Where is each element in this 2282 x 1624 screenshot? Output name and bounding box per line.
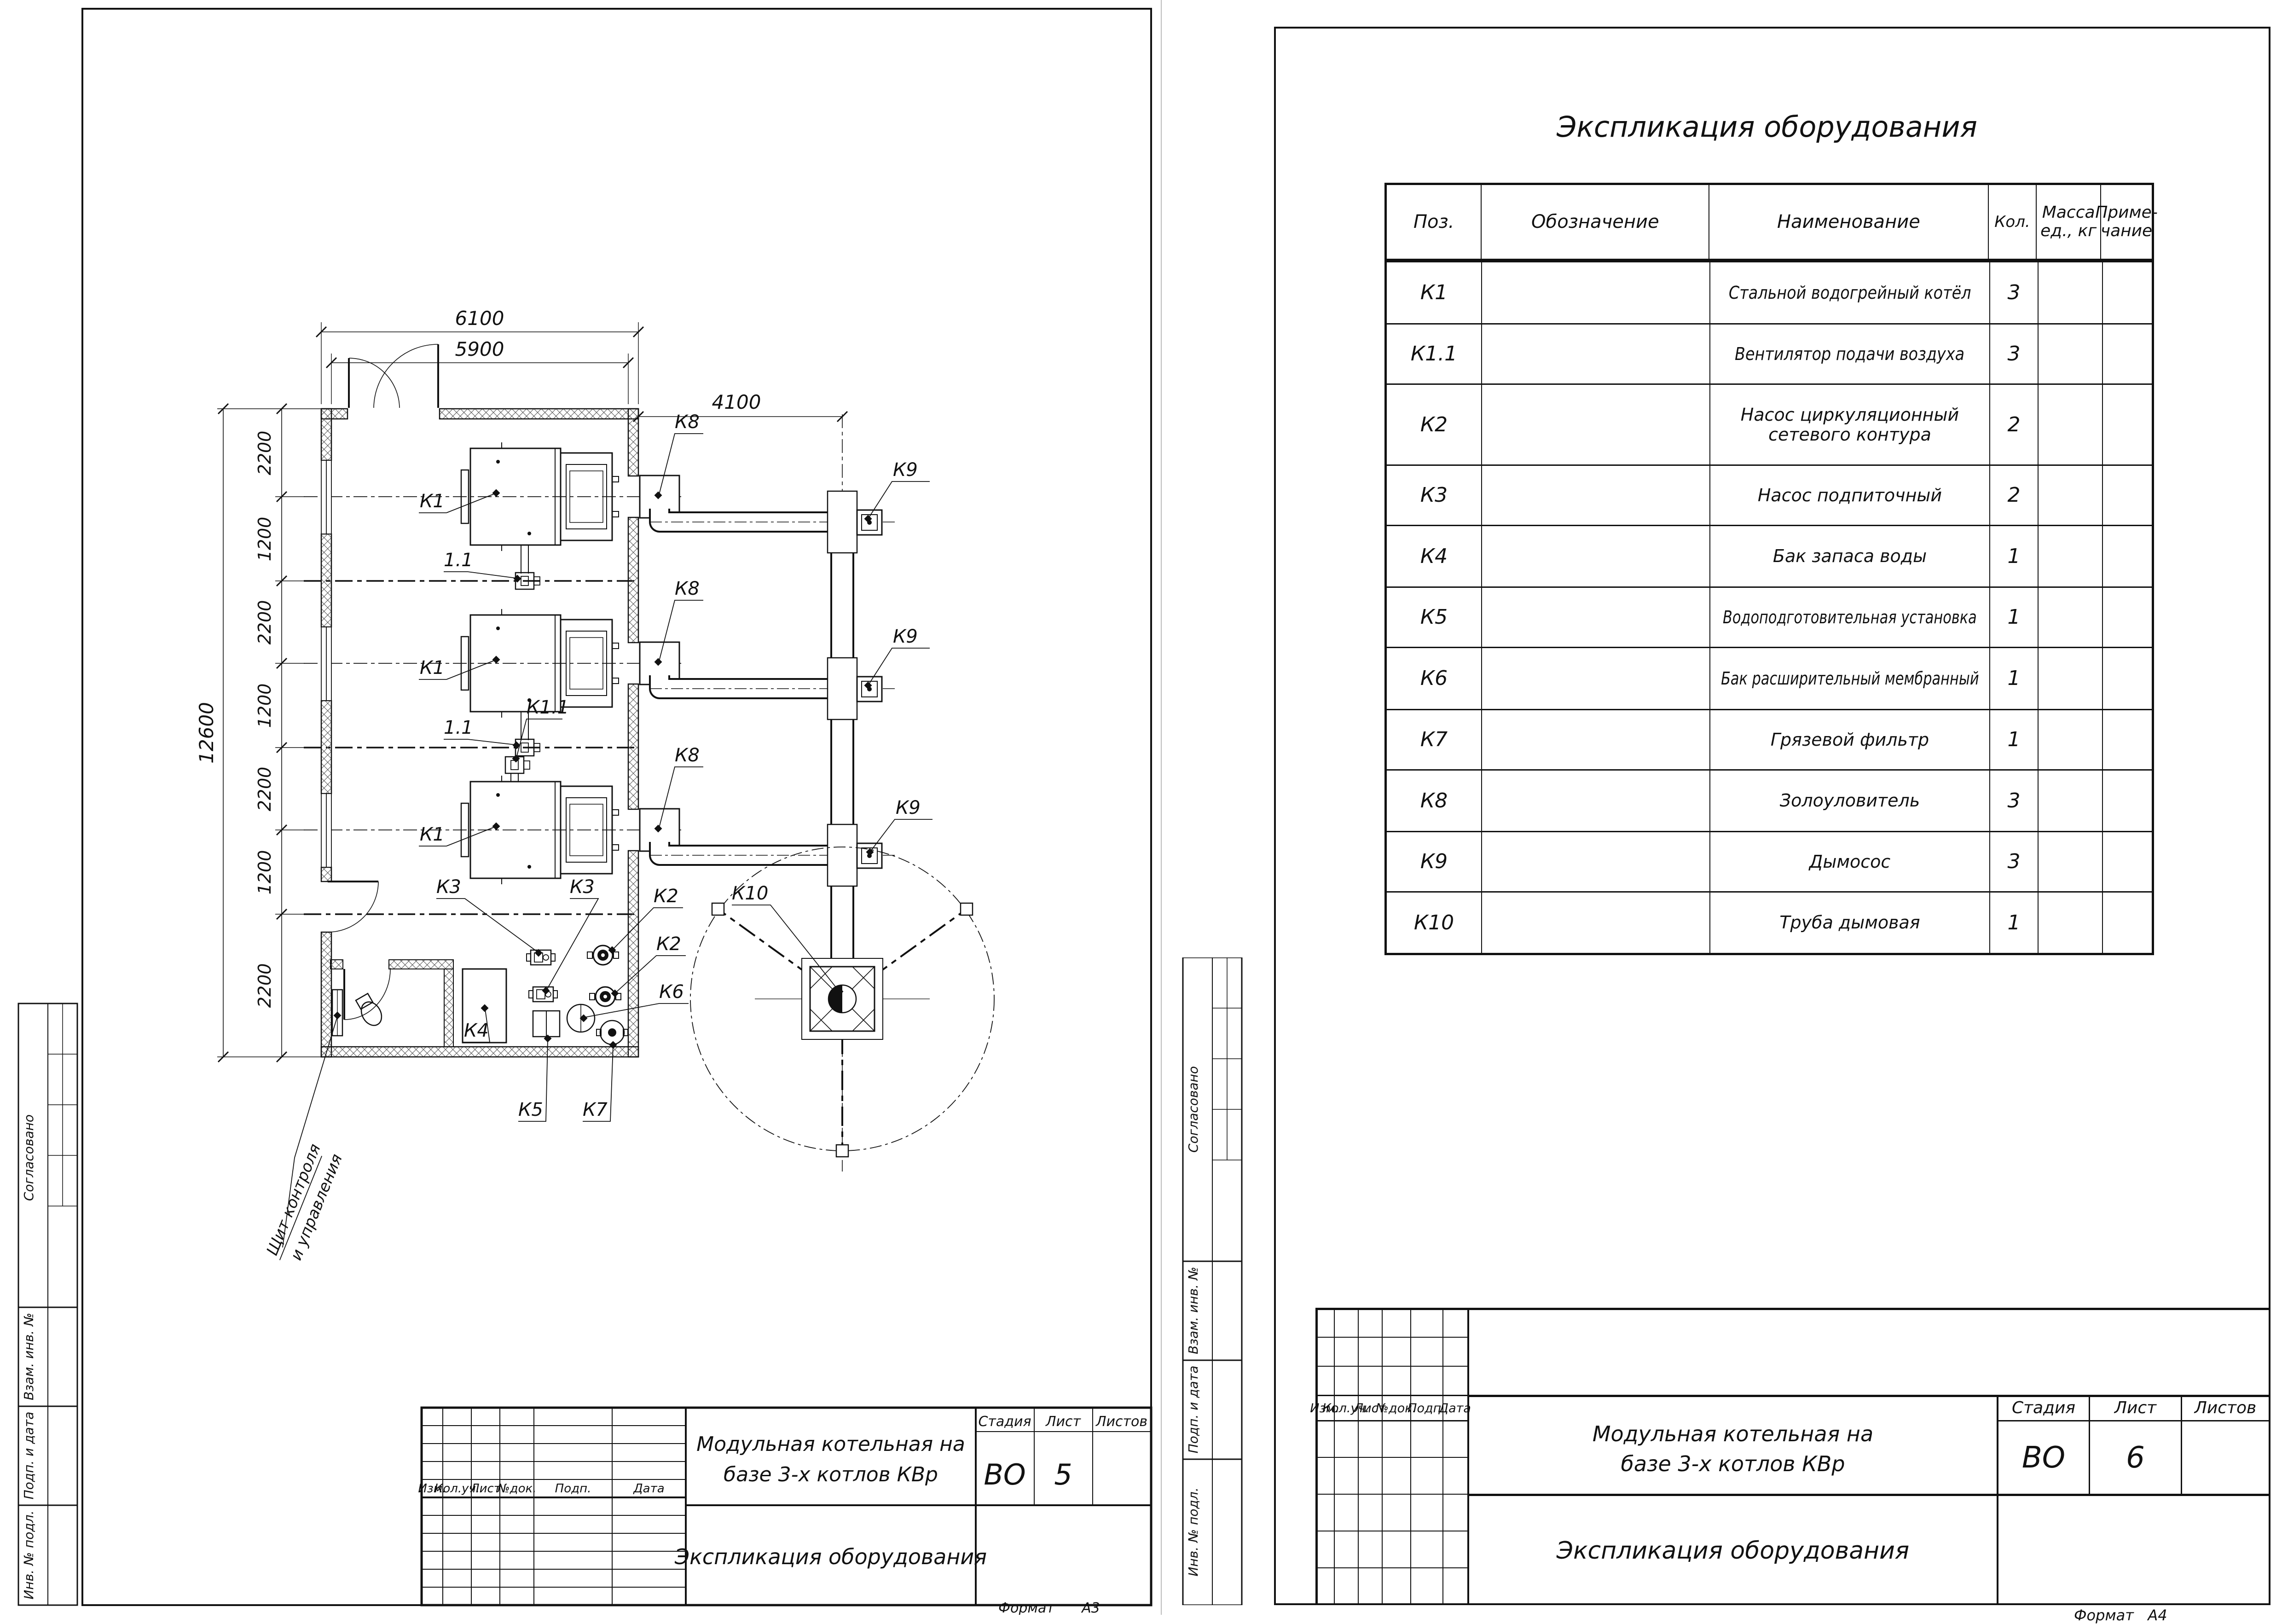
right-margin-stamps: Согласовано Взам. инв. № Подп. и дата Ин… [1176,957,1273,1605]
label-k1-3: К1 [420,824,445,845]
stamp-inv-podl: Инв. № подл. [1186,1487,1201,1576]
fan-2 [515,712,540,756]
stage-label: Стадия [978,1414,1031,1430]
page-title: Экспликация оборудования [1384,106,2149,147]
format-note: Формат А4 [2074,1607,2167,1624]
boiler-axes [304,497,681,830]
pump-k2-2 [590,987,621,1006]
svg-text:2200: 2200 [255,600,275,645]
mud-filter-k7 [597,1021,628,1044]
flue-row-1 [640,476,897,553]
svg-text:6100: 6100 [455,307,504,330]
project-title-line1: Модульная котельная на [696,1433,965,1456]
svg-text:4100: 4100 [712,391,761,413]
sheet-label: Лист [1045,1414,1082,1430]
table-row: К1 Стальной водогрейный котёл 3 [1387,261,2152,323]
fan-1 [515,545,540,589]
stamp-podp-data: Подп. и дата [1186,1366,1201,1454]
table-row: К7 Грязевой фильтр 1 [1387,709,2152,769]
col-header-name: Наименование [1709,185,1988,259]
rev-list: Лист [470,1482,501,1496]
sheet-label: Лист [2090,1396,2181,1419]
label-k1-2: К1 [420,657,445,679]
stage-value: ВО [984,1458,1025,1491]
rev-podp: Подп. [1410,1397,1442,1419]
label-k3-2: К3 [570,876,595,898]
col-header-note: Приме-чание [2101,185,2152,259]
document-scan: { "doc": { "project_line1": "Модульная к… [0,0,2282,1615]
rev-data: Дата [633,1482,664,1496]
windows [321,460,331,867]
svg-text:2200: 2200 [255,431,275,476]
stage-value: ВО [1998,1422,2089,1493]
stamp-vzam-inv: Взам. инв. № [21,1313,36,1400]
svg-text:5900: 5900 [455,338,504,360]
format-label: Формат [2074,1607,2134,1624]
equipment-table: Поз. Обозначение Наименование Кол. Масса… [1384,183,2154,955]
flue-row-2 [640,642,897,719]
left-title-block: Изм. Кол.уч. Лист №док. Подп. Дата Модул… [418,1408,1151,1615]
table-row: К1.1 Вентилятор подачи воздуха 3 [1387,323,2152,383]
extension-lines [217,322,638,1057]
label-fan-2: 1.1 [444,717,473,738]
rev-ndok: №док. [497,1482,537,1496]
label-k4: К4 [464,1020,489,1041]
table-row: К9 Дымосос 3 [1387,831,2152,891]
dim-top-6100: 6100 [316,307,643,337]
label-k1-1: К1 [420,491,445,512]
table-row: К8 Золоуловитель 3 [1387,769,2152,831]
label-k8-3: К8 [675,745,700,766]
sheet-number: 5 [1054,1458,1072,1491]
svg-text:1200: 1200 [255,684,275,728]
label-k10: К10 [732,883,768,904]
table-row: К4 Бак запаса воды 1 [1387,525,2152,586]
left-frame [82,9,1151,1605]
label-k9-2: К9 [893,626,918,647]
label-k3-1: К3 [436,876,461,898]
stamp-vzam-inv: Взам. инв. № [1186,1267,1201,1354]
label-k8-2: К8 [675,578,700,599]
side-door [328,882,378,932]
entrance-door [349,344,438,408]
svg-text:12600: 12600 [195,702,218,764]
label-fan-1: 1.1 [444,550,473,571]
rev-podp: Подп. [555,1482,591,1496]
svg-text:1200: 1200 [255,850,275,895]
wc-fixture [354,992,386,1029]
label-k2-1: К2 [654,886,678,907]
stamp-podp-data: Подп. и дата [21,1412,36,1500]
doc-title: Экспликация оборудования [1469,1496,1997,1605]
rev-data: Дата [1442,1397,1467,1419]
format-label: Формат [998,1600,1055,1615]
label-k5: К5 [518,1099,543,1120]
format-value: А3 [1081,1600,1100,1615]
project-title-line2: базе 3-х котлов КВр [724,1463,938,1486]
pump-k3-2 [529,987,557,1002]
stamp-soglasovano: Согласовано [21,1114,36,1201]
svg-text:2200: 2200 [255,963,275,1008]
floor-plan: 6100 5900 4100 2200 1200 2200 1200 2200 … [195,307,994,1269]
dim-top-5900: 5900 [326,338,633,368]
dim-chain-left: 2200 1200 2200 1200 2200 1200 2200 [255,404,287,1062]
control-panel-callout: Щит контроля и управления [262,1141,347,1269]
stage-label: Стадия [1998,1396,2089,1419]
sheets-label: Листов [2182,1396,2269,1419]
label-k2-2: К2 [656,934,681,955]
col-header-mass: Массаед., кг [2037,185,2101,259]
label-k9-1: К9 [893,459,918,481]
label-k7: К7 [583,1099,608,1120]
col-header-designation: Обозначение [1482,185,1709,259]
sheet-number: 6 [2090,1422,2181,1493]
table-row: К3 Насос подпиточный 2 [1387,464,2152,525]
water-treatment-k5 [533,1011,560,1037]
label-k1-1-fan: К1.1 [527,697,569,718]
svg-text:2200: 2200 [255,767,275,812]
sheet-plan-a3: Согласовано Взам. инв. № Подп. и дата Ин… [0,0,1162,1615]
format-value: А4 [2148,1607,2167,1624]
walls [321,409,638,1057]
stamp-inv-podl: Инв. № подл. [21,1510,36,1599]
dim-flue-4100: 4100 [633,391,847,422]
table-row: К5 Водоподготовительная установка 1 [1387,586,2152,647]
label-k9-3: К9 [896,797,921,818]
rev-ndok: №док. [1382,1397,1410,1419]
label-k8-1: К8 [675,412,700,433]
table-row: К10 Труба дымовая 1 [1387,891,2152,953]
project-title: Модульная котельная набазе 3-х котлов КВ… [1469,1404,1997,1494]
table-row: К2 Насос циркуляционныйсетевого контура … [1387,383,2152,464]
stamp-soglasovano: Согласовано [1186,1066,1201,1153]
svg-text:1200: 1200 [255,517,275,562]
sheets-label: Листов [1095,1414,1147,1430]
sheet-speclist-a4: Согласовано Взам. инв. № Подп. и дата Ин… [1163,0,2282,1615]
table-header-row: Поз. Обозначение Наименование Кол. Масса… [1387,185,2152,261]
col-header-qty: Кол. [1989,185,2037,259]
dim-total-12600: 12600 [195,404,228,1062]
table-row: К6 Бак расширительный мембранный 1 [1387,647,2152,709]
col-header-pos: Поз. [1387,185,1482,259]
plan-drawing: Согласовано Взам. инв. № Подп. и дата Ин… [0,0,1161,1615]
label-k6: К6 [659,981,684,1003]
doc-title: Экспликация оборудования [674,1544,987,1569]
